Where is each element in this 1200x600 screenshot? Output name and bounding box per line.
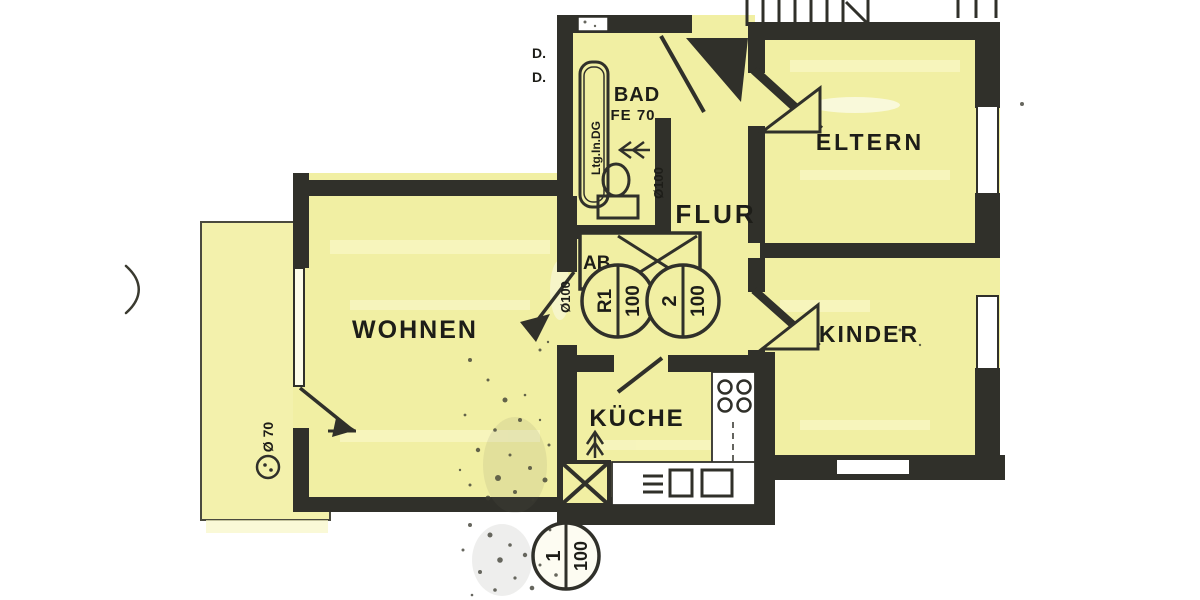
flue-r1-size: 100 <box>623 285 644 317</box>
flue-r1-id: R1 <box>595 288 616 313</box>
room-label-eltern: ELTERN <box>816 129 924 155</box>
flue-1: 1 100 <box>533 523 599 589</box>
terrace-drain-label: Ø 70 <box>260 422 276 453</box>
terrace-drain-dot <box>269 468 273 472</box>
window-kinder-bottom <box>836 459 910 475</box>
streak <box>780 300 870 312</box>
wall-flur-kinder <box>748 258 765 292</box>
flue-1-size: 100 <box>571 541 591 571</box>
floor-plan-canvas: Ø 70 <box>0 0 1200 600</box>
window-bad <box>578 17 608 31</box>
wall-wohnen-top <box>295 180 572 196</box>
window-eltern <box>977 106 998 194</box>
terrace-edge-highlight <box>206 520 328 533</box>
wall-kueche-right <box>755 352 775 507</box>
streak <box>790 60 960 72</box>
room-label-kinder: KINDER <box>819 321 919 347</box>
flue-2: 2 100 <box>647 265 719 337</box>
wall-eltern-top <box>748 22 1000 40</box>
wall-kueche-top-right <box>668 355 775 372</box>
floor-plan-page: Ø 70 <box>0 0 1200 600</box>
pipe-label-wohnen-door: Ø100 <box>558 281 573 313</box>
flue-r1: R1 100 <box>582 265 654 337</box>
flue-2-id: 2 <box>659 295 681 306</box>
terrace-drain-dot <box>263 463 267 467</box>
wall-center-upper <box>557 196 577 272</box>
wall-eltern-kinder-divider <box>760 243 975 258</box>
shaft-box-kitchen <box>561 462 609 505</box>
scan-white-smudge <box>810 97 900 113</box>
streak <box>600 440 720 450</box>
room-label-kueche: KÜCHE <box>589 405 684 432</box>
room-label-wohnen: WOHNEN <box>352 316 478 344</box>
flue-2-size: 100 <box>688 285 709 317</box>
bad-window-label: FE 70 <box>610 107 655 124</box>
room-label-bad: BAD <box>614 84 660 106</box>
window-wohnen-left <box>294 268 304 386</box>
streak <box>800 420 930 430</box>
wall-wohnen-left-upper <box>293 173 309 268</box>
wall-right-upper <box>975 33 1000 108</box>
room-label-flur: FLUR <box>675 199 756 229</box>
streak <box>800 170 950 180</box>
flue-1-id: 1 <box>543 550 565 561</box>
pipe-label-bad: Ø100 <box>651 167 666 199</box>
wall-right-mid <box>975 193 1000 258</box>
streak <box>350 300 530 310</box>
streak <box>330 240 550 254</box>
cut-label-1: D. <box>532 45 546 61</box>
wall-flur-eltern-post <box>748 33 765 73</box>
duct-note-label: Ltg.In.DG <box>589 121 603 175</box>
cut-label-2: D. <box>532 69 546 85</box>
window-kinder-right <box>977 296 998 369</box>
